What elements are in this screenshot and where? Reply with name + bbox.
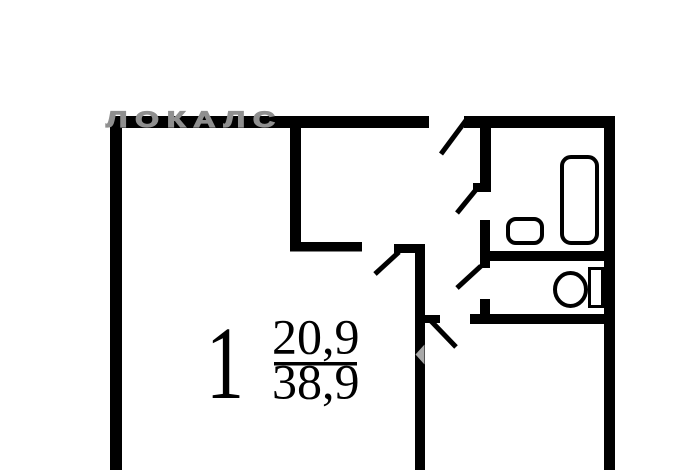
svg-text:38,9: 38,9 xyxy=(272,354,360,410)
svg-text:1: 1 xyxy=(206,305,244,420)
svg-text:ЛОКАЛС: ЛОКАЛС xyxy=(106,107,283,132)
